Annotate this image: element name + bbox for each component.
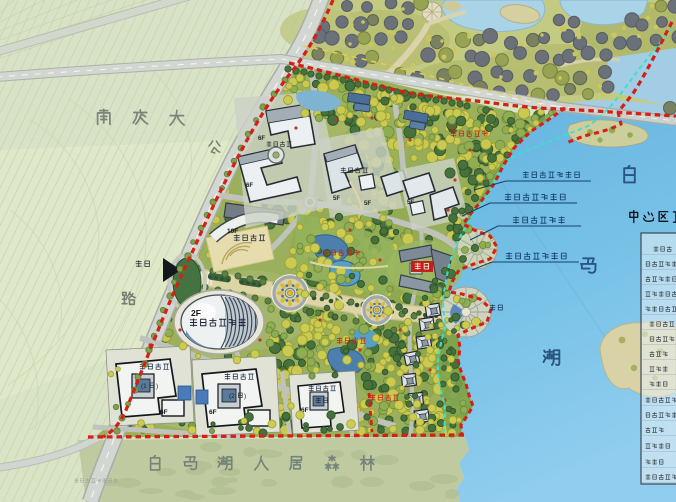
svg-text:(1: (1 xyxy=(141,383,147,390)
svg-text:): ) xyxy=(156,383,158,390)
svg-text:2F: 2F xyxy=(191,308,201,318)
svg-text:5F: 5F xyxy=(333,196,340,202)
svg-text:6F: 6F xyxy=(258,136,265,142)
svg-text:6F: 6F xyxy=(160,409,168,416)
svg-text:5F: 5F xyxy=(364,201,371,207)
svg-text:6F: 6F xyxy=(246,183,253,189)
svg-text:6F: 6F xyxy=(209,409,217,416)
svg-text:10F: 10F xyxy=(227,228,238,235)
svg-text:(2: (2 xyxy=(229,393,235,400)
svg-text:): ) xyxy=(244,393,246,400)
svg-text:5F: 5F xyxy=(407,200,414,206)
